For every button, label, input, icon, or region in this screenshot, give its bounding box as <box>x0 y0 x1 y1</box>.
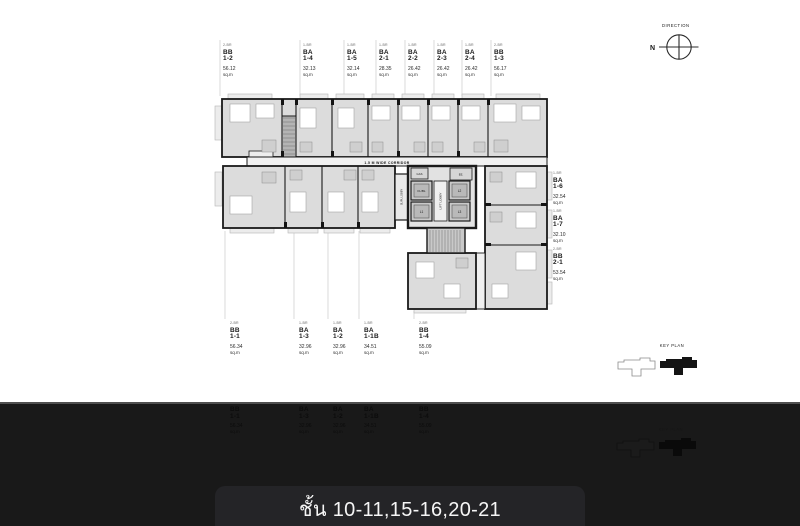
unit-number: 1-2 <box>333 414 363 421</box>
ee-room-label: EE. <box>459 173 464 177</box>
unit-number: 2-2 <box>408 56 438 63</box>
floor-selector-bar[interactable]: ชั้น 10-11,15-16,20-21 <box>215 486 585 526</box>
unit-area-unit: sq.m <box>299 350 329 355</box>
lift1-label: L1 <box>420 210 424 214</box>
key-plan: KEY PLAN <box>618 343 697 376</box>
unit-number: 1-2 <box>333 334 363 341</box>
unit-number: 1-4 <box>419 414 449 421</box>
service-lobby-label: SL/PL LOBBY <box>400 189 404 206</box>
unit-type: 1-BR <box>553 210 583 214</box>
key-plan-ghost-active <box>659 438 696 456</box>
ghost-unit-label-ba-1-2: 1-BR BA 1-2 32.96 sq.m <box>333 407 363 434</box>
unit-number: 1-1 <box>230 414 260 421</box>
unit-area-unit: sq.m <box>465 72 495 77</box>
unit-area-unit: sq.m <box>333 350 363 355</box>
unit-type: 1-BR <box>364 322 394 326</box>
unit-number: 1-3 <box>299 334 329 341</box>
unit-area-unit: sq.m <box>299 429 329 434</box>
ghost-unit-label-bb-1-1: 2-BR BB 1-1 56.34 sq.m <box>230 407 260 434</box>
unit-type: 1-BR <box>553 172 583 176</box>
unit-type: 1-BR <box>408 44 438 48</box>
unit-area-unit: sq.m <box>347 72 377 77</box>
unit-label-ba-1-6: 1-BR BA 1-6 32.54 sq.m <box>553 172 583 205</box>
unit-type: 2-BR <box>419 322 449 326</box>
unit-area-unit: sq.m <box>303 72 333 77</box>
building-footprint <box>222 99 547 309</box>
unit-number: 2-4 <box>465 56 495 63</box>
stair-shaft <box>282 116 296 157</box>
floor-plan-svg: GAS EE. FL/BL L1 L2 L3 LIFT LOBBY SL/PL … <box>0 0 800 526</box>
unit-number: 1-6 <box>553 184 583 191</box>
key-plan-ghost-title: KEY PLAN <box>659 427 683 432</box>
unit-area-unit: sq.m <box>553 238 583 243</box>
unit-type: 1-BR <box>333 322 363 326</box>
unit-area-unit: sq.m <box>553 276 583 281</box>
unit-type: 1-BR <box>437 44 467 48</box>
floor-title: ชั้น 10-11,15-16,20-21 <box>299 493 501 525</box>
unit-area-unit: sq.m <box>419 350 449 355</box>
unit-area-unit: sq.m <box>230 350 260 355</box>
unit-label-ba-2-4: 1-BR BA 2-4 26.42 sq.m <box>465 44 495 77</box>
unit-area-unit: sq.m <box>333 429 363 434</box>
unit-area-unit: sq.m <box>408 72 438 77</box>
compass-icon: DIRECTION N <box>650 23 699 59</box>
key-plan-ghost-outline <box>617 439 654 457</box>
key-plan-ghost: KEY PLAN <box>617 427 696 457</box>
unit-label-bb-1-4: 2-BR BB 1-4 55.09 sq.m <box>419 322 449 355</box>
unit-area-unit: sq.m <box>379 72 409 77</box>
corridor-label: 1.5 M WIDE CORRIDOR <box>364 161 409 165</box>
unit-label-ba-1-2: 1-BR BA 1-2 32.96 sq.m <box>333 322 363 355</box>
lift2-label: L2 <box>458 189 462 193</box>
unit-label-ba-1-3: 1-BR BA 1-3 32.96 sq.m <box>299 322 329 355</box>
unit-number: 1-4 <box>419 334 449 341</box>
unit-label-ba-2-1: 1-BR BA 2-1 28.35 sq.m <box>379 44 409 77</box>
ghost-unit-label-bb-1-4: 2-BR BB 1-4 55.09 sq.m <box>419 407 449 434</box>
unit-area-unit: sq.m <box>364 350 394 355</box>
unit-label-bb-2-1: 2-BR BB 2-1 53.54 sq.m <box>553 248 583 281</box>
unit-type: 2-BR <box>553 248 583 252</box>
unit-type: 1-BR <box>347 44 377 48</box>
unit-number: 1-1B <box>364 334 394 341</box>
unit-number: 1-1B <box>364 414 394 421</box>
unit-area-unit: sq.m <box>494 72 524 77</box>
key-plan-title: KEY PLAN <box>660 343 684 348</box>
unit-number: 2-3 <box>437 56 467 63</box>
unit-number: 1-2 <box>223 56 253 63</box>
unit-area-unit: sq.m <box>223 72 253 77</box>
fire-lift-label: FL/BL <box>417 189 425 193</box>
unit-type: 1-BR <box>379 44 409 48</box>
unit-label-ba-1-4: 1-BR BA 1-4 32.13 sq.m <box>303 44 333 77</box>
unit-number: 2-1 <box>553 260 583 267</box>
unit-number: 1-3 <box>494 56 524 63</box>
unit-label-bb-1-3: 2-BR BB 1-3 56.17 sq.m <box>494 44 524 77</box>
north-label: N <box>650 45 655 52</box>
lift-lobby-label: LIFT LOBBY <box>439 193 443 210</box>
unit-number: 1-1 <box>230 334 260 341</box>
unit-area-unit: sq.m <box>437 72 467 77</box>
unit-type: 1-BR <box>303 44 333 48</box>
unit-type: 2-BR <box>494 44 524 48</box>
unit-type: 1-BR <box>299 322 329 326</box>
gas-room-label: GAS <box>417 172 423 176</box>
unit-label-ba-1-5: 1-BR BA 1-5 32.14 sq.m <box>347 44 377 77</box>
ghost-unit-label-ba-1-3: 1-BR BA 1-3 32.96 sq.m <box>299 407 329 434</box>
unit-label-bb-1-2: 2-BR BB 1-2 56.12 sq.m <box>223 44 253 77</box>
key-plan-outline-shape <box>618 358 655 376</box>
unit-type: 2-BR <box>223 44 253 48</box>
unit-number: 1-7 <box>553 222 583 229</box>
unit-type: 2-BR <box>230 322 260 326</box>
unit-label-ba-1-1b: 1-BR BA 1-1B 34.51 sq.m <box>364 322 394 355</box>
unit-label-ba-2-2: 1-BR BA 2-2 26.42 sq.m <box>408 44 438 77</box>
unit-area-unit: sq.m <box>419 429 449 434</box>
unit-label-ba-1-7: 1-BR BA 1-7 32.10 sq.m <box>553 210 583 243</box>
unit-area-unit: sq.m <box>230 429 260 434</box>
unit-number: 1-5 <box>347 56 377 63</box>
unit-type: 1-BR <box>465 44 495 48</box>
unit-label-ba-2-3: 1-BR BA 2-3 26.42 sq.m <box>437 44 467 77</box>
key-plan-active-shape <box>660 357 697 375</box>
direction-title: DIRECTION <box>662 23 690 28</box>
unit-area-unit: sq.m <box>364 429 394 434</box>
unit-number: 1-3 <box>299 414 329 421</box>
floorplan-page: GAS EE. FL/BL L1 L2 L3 LIFT LOBBY SL/PL … <box>0 0 800 526</box>
unit-number: 1-4 <box>303 56 333 63</box>
ghost-unit-label-ba-1-1b: 1-BR BA 1-1B 34.51 sq.m <box>364 407 394 434</box>
unit-area-unit: sq.m <box>553 200 583 205</box>
unit-number: 2-1 <box>379 56 409 63</box>
lift3-label: L3 <box>458 210 462 214</box>
unit-label-bb-1-1: 2-BR BB 1-1 56.34 sq.m <box>230 322 260 355</box>
